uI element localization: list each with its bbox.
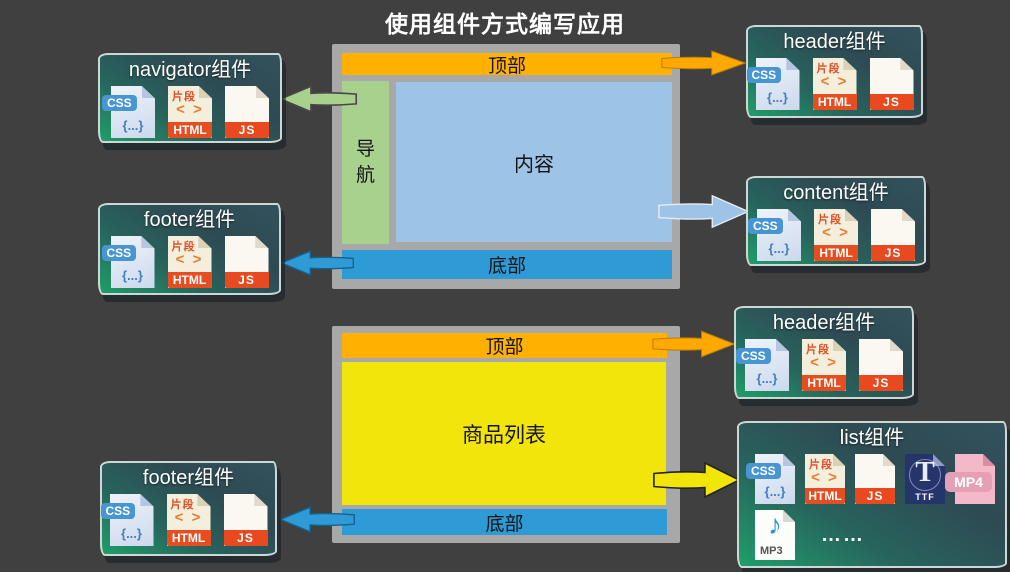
js-band-label: JS: [871, 245, 915, 261]
css-file-icon: CSS {...}: [111, 236, 155, 288]
wireframe1-bottom-bar: 底部: [342, 250, 672, 279]
css-badge-label: CSS: [747, 67, 782, 83]
css-badge-label: CSS: [101, 503, 136, 519]
html-fragment-file-icon: 片段 < > HTML: [814, 209, 858, 261]
js-band-label: JS: [225, 272, 269, 288]
html-band-label: HTML: [805, 488, 845, 504]
mp3-audio-file-icon: ♪ MP3: [755, 510, 795, 560]
music-note-icon: ♪: [755, 510, 795, 541]
css-badge-label: CSS: [746, 463, 781, 479]
css-braces-symbol: {...}: [110, 526, 154, 541]
css-braces-symbol: {...}: [745, 371, 789, 386]
js-file-icon: JS: [859, 339, 903, 391]
card-icon-row: CSS {...} 片段 < > HTML JS: [100, 236, 279, 288]
css-badge-label: CSS: [748, 218, 783, 234]
arrow-top1-to-header1: [661, 49, 747, 77]
mp4-video-file-icon: MP4: [955, 454, 995, 504]
card-title: footer组件: [102, 466, 275, 490]
css-file-icon: CSS {...}: [756, 58, 800, 110]
ttf-font-file-icon: T TTF: [905, 454, 945, 504]
css-braces-symbol: {...}: [757, 241, 801, 256]
js-file-icon: JS: [871, 209, 915, 261]
wireframe2-bottom-bar: 底部: [342, 509, 667, 535]
css-file-icon: CSS {...}: [111, 86, 155, 138]
html-fragment-file-icon: 片段 < > HTML: [802, 339, 846, 391]
card-title: header组件: [748, 30, 921, 54]
html-angle-brackets-symbol: < >: [813, 73, 857, 90]
arrow-bottom2-to-footer2: [279, 505, 355, 534]
diagram-canvas: 使用组件方式编写应用 顶部 导航 内容 底部 顶部 商品列表 底部: [0, 0, 1010, 572]
wireframe2-product-list-area: 商品列表: [342, 362, 666, 505]
card-icon-row: CSS {...} 片段 < > HTML JS: [100, 86, 280, 138]
card-icon-row: CSS {...} 片段 < > HTML JS: [736, 339, 912, 391]
card-icon-row: CSS {...} 片段 < > HTML JS: [102, 494, 275, 546]
html-angle-brackets-symbol: < >: [805, 469, 845, 486]
wireframe2-bottom-label: 底部: [485, 509, 523, 536]
arrow-list-to-list-card: [653, 460, 741, 500]
js-band-label: JS: [870, 94, 914, 110]
card-icon-row: CSS {...} 片段 < > HTML JS T TTF MP4: [739, 454, 1005, 504]
js-band-label: JS: [855, 488, 895, 504]
card-title: navigator组件: [100, 58, 280, 82]
card-title: list组件: [739, 426, 1005, 450]
content-component-card: content组件 CSS {...} 片段 < > HTML JS: [746, 176, 926, 266]
wireframe1-content-label: 内容: [514, 148, 554, 177]
css-file-icon: CSS {...}: [757, 209, 801, 261]
mp3-label: MP3: [760, 545, 783, 557]
navigator-component-card: navigator组件 CSS {...} 片段 < > HTML JS: [98, 53, 282, 143]
wireframe1-top-label: 顶部: [488, 51, 526, 78]
file-fold: [883, 454, 895, 466]
arrow-nav-to-navigator: [279, 84, 357, 114]
list-component-card: list组件 CSS {...} 片段 < > HTML JS T TTF: [737, 421, 1007, 568]
wireframe1-top-bar: 顶部: [342, 53, 672, 75]
html-band-label: HTML: [168, 122, 212, 138]
file-fold: [983, 454, 995, 466]
html-fragment-file-icon: 片段 < > HTML: [805, 454, 845, 504]
app-wireframe-2: 顶部 商品列表 底部: [332, 326, 680, 543]
footer-component-card-1: footer组件 CSS {...} 片段 < > HTML JS: [98, 203, 281, 295]
card-icon-row: CSS {...} 片段 < > HTML JS: [748, 58, 921, 110]
js-file-icon: JS: [225, 236, 269, 288]
html-band-label: HTML: [814, 245, 858, 261]
html-fragment-file-icon: 片段 < > HTML: [813, 58, 857, 110]
more-files-ellipsis: ……: [821, 525, 865, 545]
mp4-band-label: MP4: [945, 472, 992, 492]
html-angle-brackets-symbol: < >: [168, 101, 212, 118]
wireframe1-bottom-label: 底部: [488, 251, 526, 278]
css-braces-symbol: {...}: [755, 484, 795, 499]
wireframe1-nav-label: 导航: [355, 137, 377, 188]
html-fragment-file-icon: 片段 < > HTML: [168, 86, 212, 138]
css-braces-symbol: {...}: [756, 90, 800, 105]
html-fragment-file-icon: 片段 < > HTML: [167, 494, 211, 546]
js-file-icon: JS: [870, 58, 914, 110]
footer-component-card-2: footer组件 CSS {...} 片段 < > HTML JS: [100, 461, 277, 556]
css-badge-label: CSS: [736, 348, 771, 364]
arrow-top2-to-header2: [652, 329, 736, 359]
css-badge-label: CSS: [102, 245, 137, 261]
js-file-icon: JS: [225, 86, 269, 138]
css-braces-symbol: {...}: [111, 118, 155, 133]
js-file-icon: JS: [855, 454, 895, 504]
arrow-content-to-content-card: [658, 193, 750, 230]
ttf-label: TTF: [905, 492, 945, 502]
html-band-label: HTML: [813, 94, 857, 110]
js-band-label: JS: [224, 530, 268, 546]
header-component-card-2: header组件 CSS {...} 片段 < > HTML JS: [734, 306, 914, 399]
header-component-card-1: header组件 CSS {...} 片段 < > HTML JS: [746, 25, 923, 118]
css-file-icon: CSS {...}: [110, 494, 154, 546]
card-title: footer组件: [100, 208, 279, 232]
html-angle-brackets-symbol: < >: [802, 354, 846, 371]
html-band-label: HTML: [802, 375, 846, 391]
html-fragment-file-icon: 片段 < > HTML: [168, 236, 212, 288]
html-angle-brackets-symbol: < >: [168, 251, 212, 268]
app-wireframe-1: 顶部 导航 内容 底部: [332, 44, 680, 289]
card-icon-row: CSS {...} 片段 < > HTML JS: [748, 209, 924, 261]
wireframe2-top-bar: 顶部: [342, 333, 667, 358]
file-fold: [783, 454, 795, 466]
js-file-icon: JS: [224, 494, 268, 546]
js-band-label: JS: [225, 122, 269, 138]
css-braces-symbol: {...}: [111, 268, 155, 283]
css-file-icon: CSS {...}: [755, 454, 795, 504]
js-band-label: JS: [859, 375, 903, 391]
html-angle-brackets-symbol: < >: [167, 509, 211, 526]
card-title: content组件: [748, 181, 924, 205]
card-icon-row-2: ♪ MP3 ……: [739, 510, 1005, 560]
ttf-letter-glyph: T: [905, 456, 945, 489]
wireframe1-content-area: 内容: [396, 82, 672, 242]
css-file-icon: CSS {...}: [745, 339, 789, 391]
wireframe2-top-label: 顶部: [485, 332, 523, 359]
html-band-label: HTML: [168, 272, 212, 288]
html-band-label: HTML: [167, 530, 211, 546]
file-fold: [833, 454, 845, 466]
css-badge-label: CSS: [102, 95, 137, 111]
card-title: header组件: [736, 311, 912, 335]
arrow-bottom1-to-footer1: [280, 249, 354, 277]
html-angle-brackets-symbol: < >: [814, 224, 858, 241]
wireframe2-list-label: 商品列表: [462, 419, 546, 449]
